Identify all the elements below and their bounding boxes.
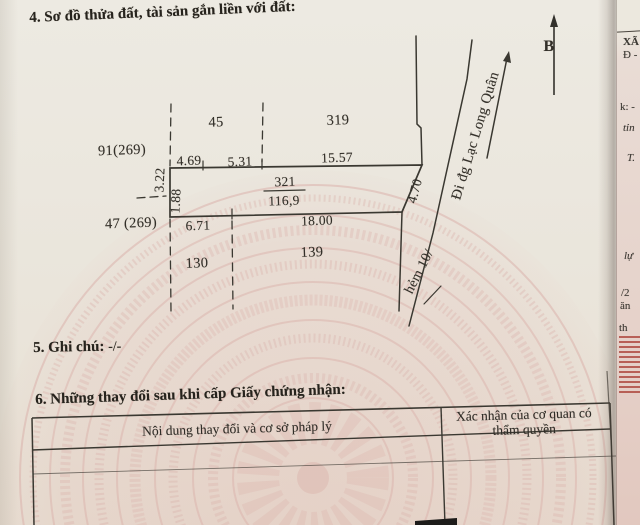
- neighbor-parcel-91: 91(269): [98, 142, 147, 161]
- table-col2-header: Xác nhận của cơ quan có thẩm quyền: [444, 405, 605, 440]
- page-fragment: ăn: [620, 300, 630, 312]
- road-near-edge-line: [416, 36, 422, 165]
- dashed-boundary-left-up: [170, 104, 171, 166]
- neighbor-parcel-139: 139: [300, 244, 323, 262]
- section5-value: -/-: [108, 339, 121, 354]
- page-fragment: lự: [624, 250, 633, 262]
- edge-length-1-88: 1.88: [167, 188, 184, 214]
- page-fragment: XÃ: [623, 36, 639, 48]
- adjacent-page-rule: [617, 30, 640, 32]
- section5-label: 5. Ghi chú:: [33, 339, 105, 356]
- neighbor-parcel-130: 130: [185, 255, 208, 273]
- page-fragment: T.: [627, 152, 635, 164]
- page-fragment: th: [619, 322, 628, 334]
- edge-length-4-69: 4.69: [176, 153, 201, 170]
- dashed-boundary-mid-up: [262, 103, 263, 162]
- page-fragment: tỉn: [623, 122, 635, 134]
- page-fragment: Đ -: [623, 49, 637, 61]
- neighbor-parcel-45: 45: [208, 114, 224, 132]
- edge-length-3-22: 3.22: [151, 167, 168, 193]
- dashed-boundary-mid-down: [232, 221, 233, 309]
- north-label: B: [544, 38, 555, 56]
- neighbor-parcel-47: 47 (269): [105, 215, 157, 234]
- parcel-fraction-bar: [264, 190, 305, 191]
- page-fragment: k: -: [620, 101, 635, 113]
- certificate-page-photo: 4. Sơ đồ thửa đất, tài sản gắn liền với …: [0, 0, 640, 525]
- diagram-and-table-lines: [0, 0, 640, 525]
- page-fragment: /2: [621, 287, 630, 299]
- neighbor-parcel-319: 319: [326, 112, 349, 130]
- stamp-text-block: [619, 336, 640, 394]
- alley-edge-line: [399, 212, 402, 311]
- parcel-area: 116,9: [268, 192, 300, 209]
- next-row-dark-bar: [415, 518, 457, 525]
- section5-note: 5. Ghi chú: -/-: [33, 338, 122, 357]
- edge-length-15-57: 15.57: [321, 149, 353, 166]
- adjacent-page-edge: XÃ Đ - k: - tỉn T. lự /2 ăn th: [616, 0, 640, 525]
- parcel-number: 321: [274, 174, 296, 191]
- edge-length-18-00: 18.00: [301, 212, 333, 229]
- edge-length-5-31: 5.31: [227, 154, 252, 171]
- edge-length-6-71: 6.71: [185, 218, 210, 235]
